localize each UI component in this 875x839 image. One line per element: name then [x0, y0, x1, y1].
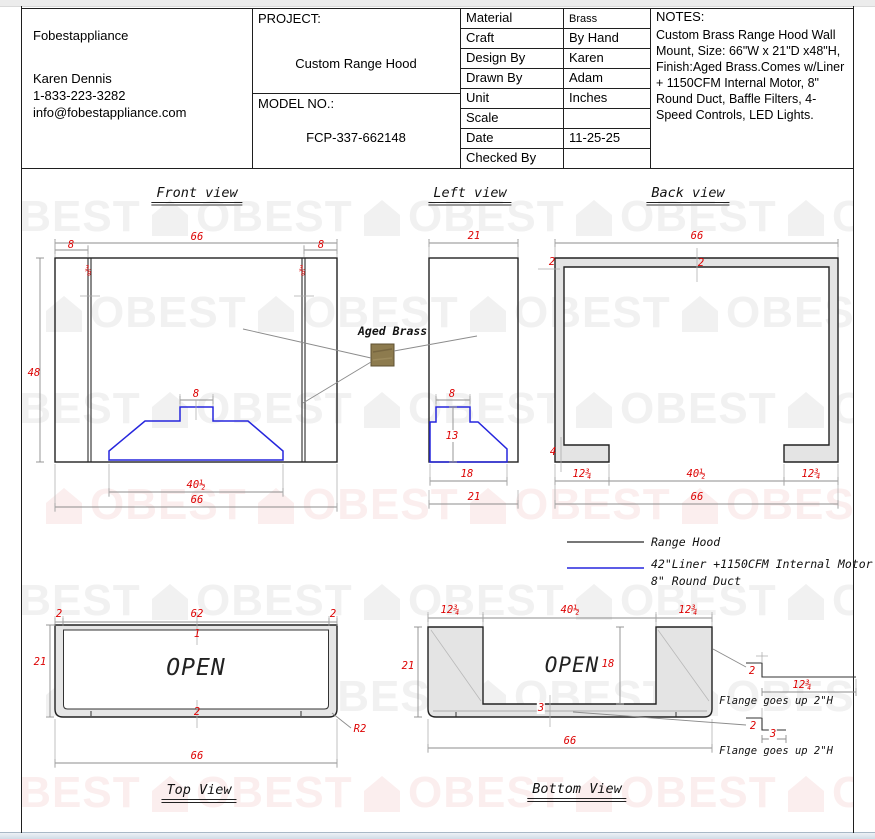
drawing-sheet: OBESTOBESTOBESTOBESTOBESTOBESTOBESTOBEST…	[0, 0, 875, 839]
bottom-view-outline	[428, 627, 712, 717]
flange-step-upper	[746, 663, 856, 677]
brass-swatch	[371, 344, 394, 366]
flange-step-lower	[746, 718, 786, 730]
drawing-linework	[0, 0, 875, 839]
left-view-outline	[429, 258, 518, 462]
back-view-frame	[555, 258, 838, 462]
front-view-wall-strips	[88, 258, 305, 462]
front-view-outline	[55, 258, 337, 462]
top-view-opening	[64, 630, 329, 709]
left-view-liner-outline	[430, 407, 507, 462]
